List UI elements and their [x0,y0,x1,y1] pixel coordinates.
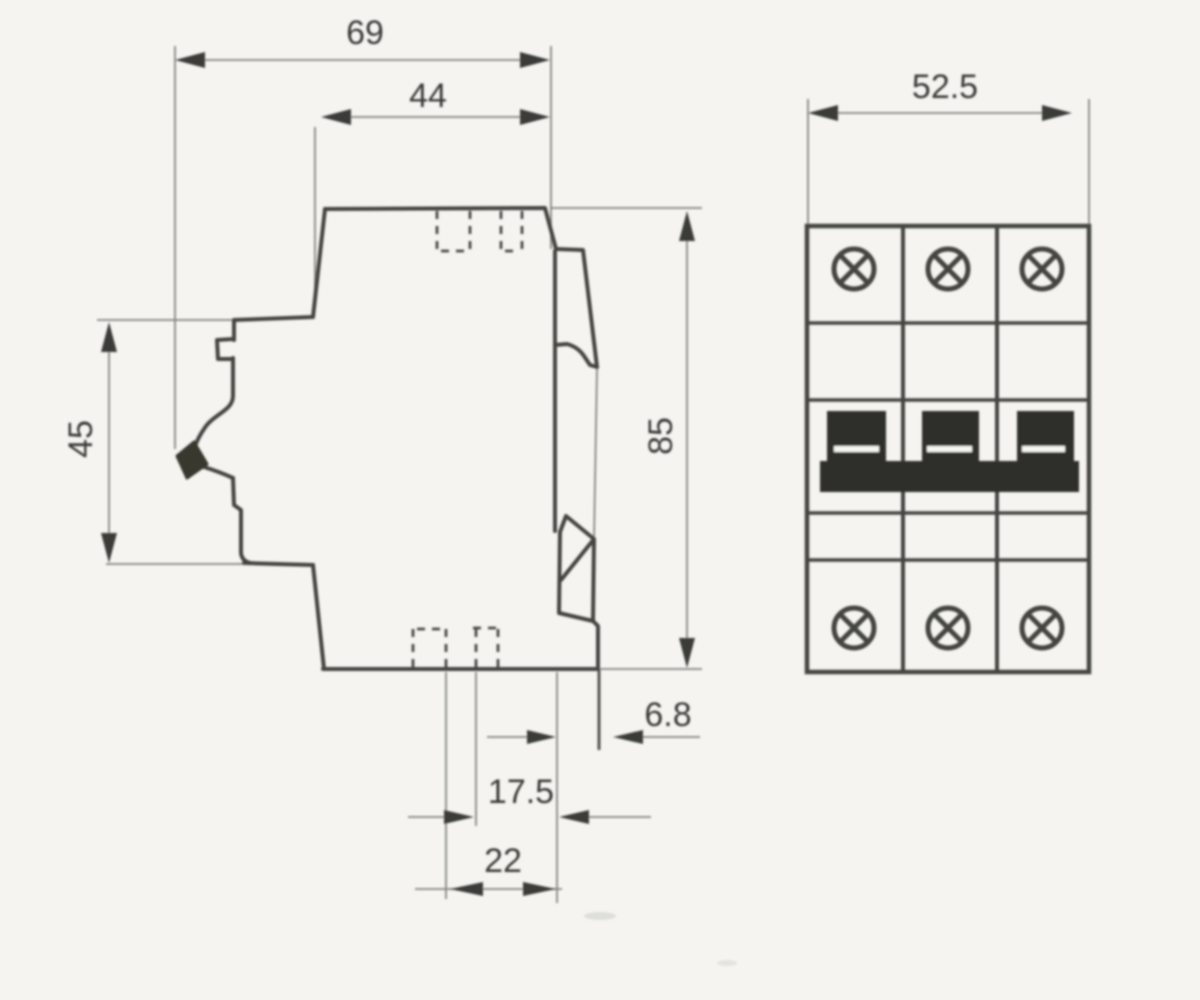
svg-text:69: 69 [346,14,384,52]
svg-text:52.5: 52.5 [912,68,978,106]
svg-text:85: 85 [642,417,680,455]
svg-text:45: 45 [62,420,100,458]
svg-text:44: 44 [409,77,447,115]
svg-text:6.8: 6.8 [644,696,691,734]
svg-text:22: 22 [484,842,522,880]
svg-text:17.5: 17.5 [488,773,554,811]
